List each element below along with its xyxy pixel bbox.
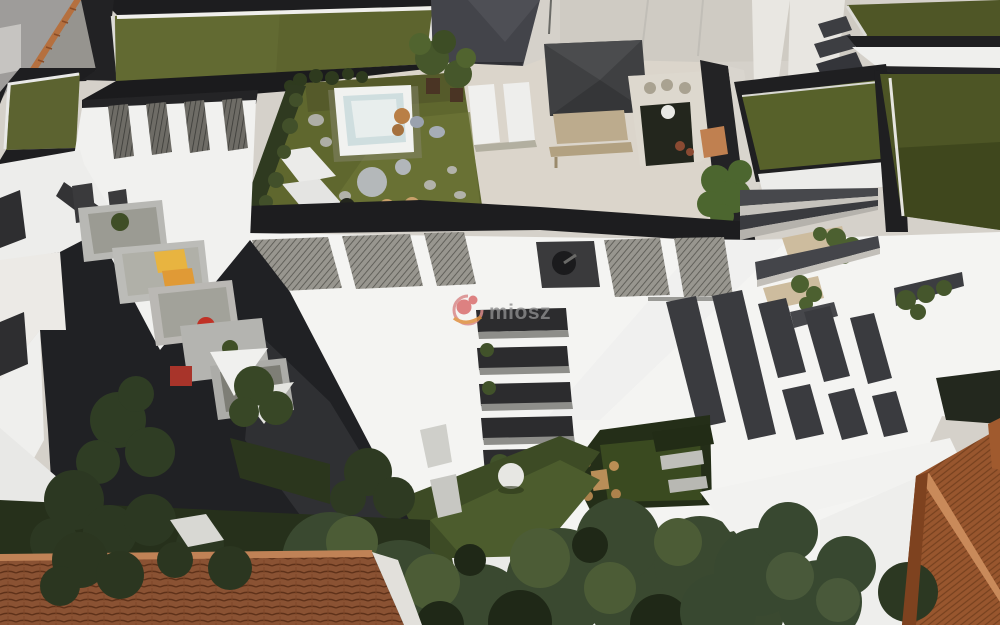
svg-text:miosz: miosz <box>489 301 551 324</box>
